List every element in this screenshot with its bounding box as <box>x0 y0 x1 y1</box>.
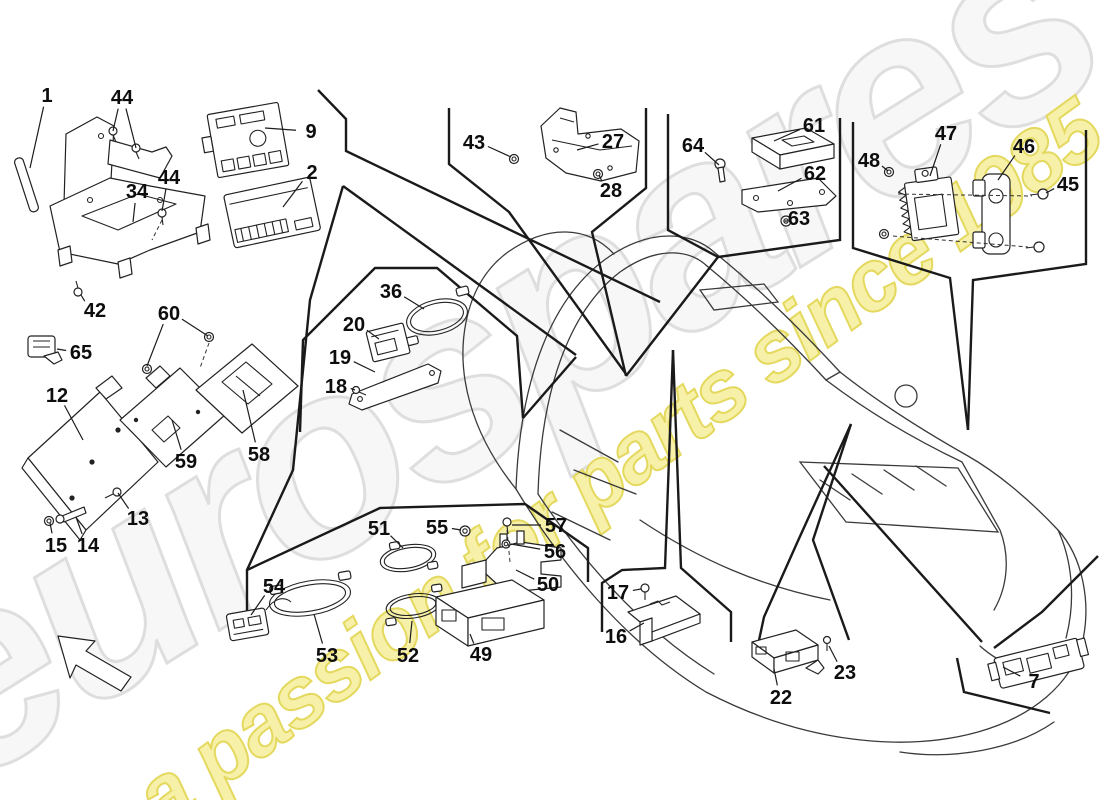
part-label-17: 17 <box>607 582 629 604</box>
part-label-22: 22 <box>770 687 792 709</box>
part-label-28: 28 <box>600 180 622 202</box>
nut-43-icon <box>510 155 519 164</box>
part-label-44: 44 <box>158 167 181 189</box>
part-label-52: 52 <box>397 645 419 667</box>
part-label-15: 15 <box>45 535 67 557</box>
part-label-64: 64 <box>682 135 705 157</box>
part-label-56: 56 <box>544 541 566 563</box>
part-label-60: 60 <box>158 303 180 325</box>
part-label-65: 65 <box>70 342 92 364</box>
part-label-18: 18 <box>325 376 347 398</box>
part-label-16: 16 <box>605 626 627 648</box>
nut-48b-icon <box>880 230 889 239</box>
parts-diagram-page: eurospares a passion for parts since 198… <box>0 0 1100 800</box>
part-label-54: 54 <box>263 576 286 598</box>
part-label-42: 42 <box>84 300 106 322</box>
part-65-clip <box>28 336 62 364</box>
part-label-45: 45 <box>1057 174 1079 196</box>
part-leader-23 <box>829 646 837 662</box>
part-label-49: 49 <box>470 644 492 666</box>
screw-42-icon <box>74 281 82 296</box>
nut-15-icon <box>45 517 54 526</box>
part-label-36: 36 <box>380 281 402 303</box>
part-label-51: 51 <box>368 518 390 540</box>
screw-45b-icon <box>1026 242 1044 252</box>
part-label-9: 9 <box>305 121 316 143</box>
part-label-47: 47 <box>935 123 957 145</box>
part-label-1: 1 <box>41 85 52 107</box>
part-label-57: 57 <box>545 515 567 537</box>
part-leader-1 <box>30 107 44 168</box>
part-label-62: 62 <box>804 163 826 185</box>
part-1-strip <box>14 157 40 213</box>
part-label-34: 34 <box>126 181 149 203</box>
part-leader-65 <box>57 349 66 351</box>
part-leader-60 <box>182 319 208 336</box>
part-label-13: 13 <box>127 508 149 530</box>
part-label-20: 20 <box>343 314 365 336</box>
part-2-control-unit <box>224 177 321 248</box>
grommet-55-icon <box>460 526 470 536</box>
part-label-48: 48 <box>858 150 880 172</box>
part-label-23: 23 <box>834 662 856 684</box>
part-label-61: 61 <box>803 115 825 137</box>
part-label-50: 50 <box>537 574 559 596</box>
part-label-14: 14 <box>77 535 100 557</box>
part-22-module <box>752 630 824 674</box>
part-9-control-unit <box>198 102 289 179</box>
part-label-43: 43 <box>463 132 485 154</box>
nut-28-icon <box>594 170 603 179</box>
part-label-27: 27 <box>602 131 624 153</box>
part-label-53: 53 <box>316 645 338 667</box>
part-label-55: 55 <box>426 517 448 539</box>
nut-60b-icon <box>205 333 214 342</box>
part-label-2: 2 <box>306 162 317 184</box>
part-label-7: 7 <box>1028 671 1039 693</box>
part-leader-17 <box>633 589 641 590</box>
part-leader-44 <box>126 109 136 148</box>
part-label-19: 19 <box>329 347 351 369</box>
screw-17-icon <box>641 584 649 600</box>
part-label-12: 12 <box>46 385 68 407</box>
part-label-44: 44 <box>111 87 134 109</box>
part-leader-60 <box>147 324 163 366</box>
screw-23-icon <box>824 637 831 652</box>
part-label-63: 63 <box>788 208 810 230</box>
parts-diagram: eurospares a passion for parts since 198… <box>0 0 1100 800</box>
part-label-58: 58 <box>248 444 270 466</box>
part-leader-43 <box>488 147 511 157</box>
part-label-59: 59 <box>175 451 197 473</box>
part-label-46: 46 <box>1013 136 1035 158</box>
